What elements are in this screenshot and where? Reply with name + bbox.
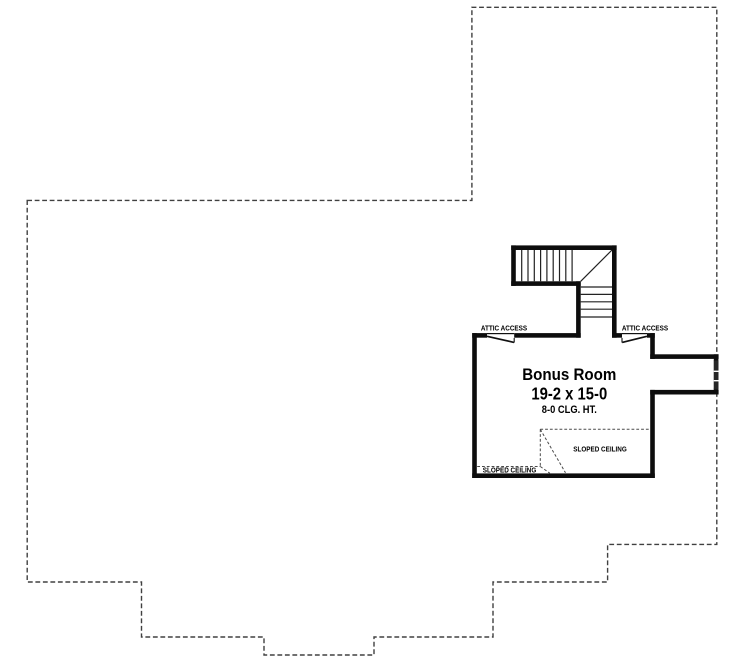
svg-text:Bonus Room: Bonus Room — [522, 366, 616, 384]
svg-text:SLOPED CEILING: SLOPED CEILING — [483, 468, 537, 475]
svg-text:19-2 x 15-0: 19-2 x 15-0 — [531, 384, 607, 404]
svg-text:ATTIC ACCESS: ATTIC ACCESS — [481, 324, 527, 333]
svg-text:SLOPED CEILING: SLOPED CEILING — [573, 447, 627, 454]
svg-text:8-0 CLG. HT.: 8-0 CLG. HT. — [542, 404, 597, 416]
svg-text:ATTIC ACCESS: ATTIC ACCESS — [622, 323, 668, 332]
